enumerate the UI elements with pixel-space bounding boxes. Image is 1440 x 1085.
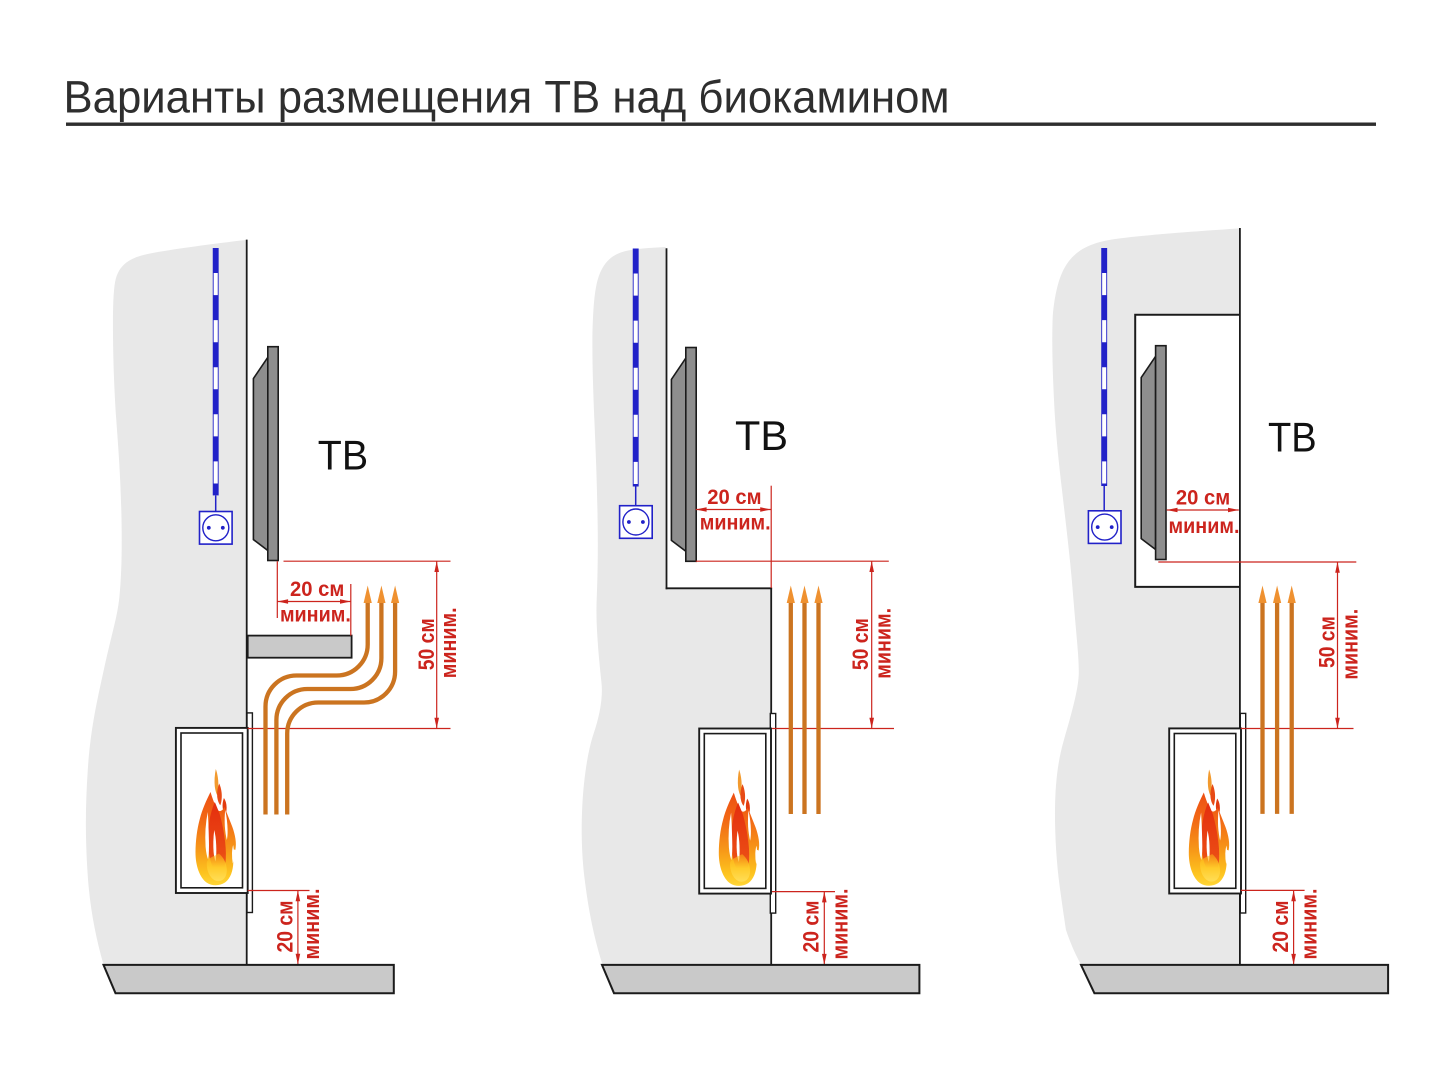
svg-text:20 см: 20 см xyxy=(290,577,344,601)
svg-text:20 см: 20 см xyxy=(799,901,824,953)
svg-text:миним.: миним. xyxy=(436,607,461,678)
svg-text:ТВ: ТВ xyxy=(318,432,368,479)
svg-text:20 см: 20 см xyxy=(1268,901,1293,953)
svg-text:миним.: миним. xyxy=(871,608,896,679)
svg-text:миним.: миним. xyxy=(280,603,351,627)
svg-text:миним.: миним. xyxy=(299,889,324,960)
svg-text:миним.: миним. xyxy=(700,510,771,534)
svg-text:миним.: миним. xyxy=(1169,514,1240,538)
svg-text:20 см: 20 см xyxy=(272,901,297,953)
svg-text:20 см: 20 см xyxy=(1176,486,1230,510)
svg-text:50 см: 50 см xyxy=(848,618,873,670)
svg-text:миним.: миним. xyxy=(827,889,852,960)
svg-text:ТВ: ТВ xyxy=(735,412,788,459)
svg-text:Варианты размещения ТВ над био: Варианты размещения ТВ над биокамином xyxy=(64,72,950,123)
svg-text:миним.: миним. xyxy=(1337,609,1362,680)
svg-text:ТВ: ТВ xyxy=(1268,414,1317,461)
svg-text:50 см: 50 см xyxy=(1315,616,1340,668)
svg-text:миним.: миним. xyxy=(1296,889,1321,960)
svg-text:20 см: 20 см xyxy=(707,485,761,509)
